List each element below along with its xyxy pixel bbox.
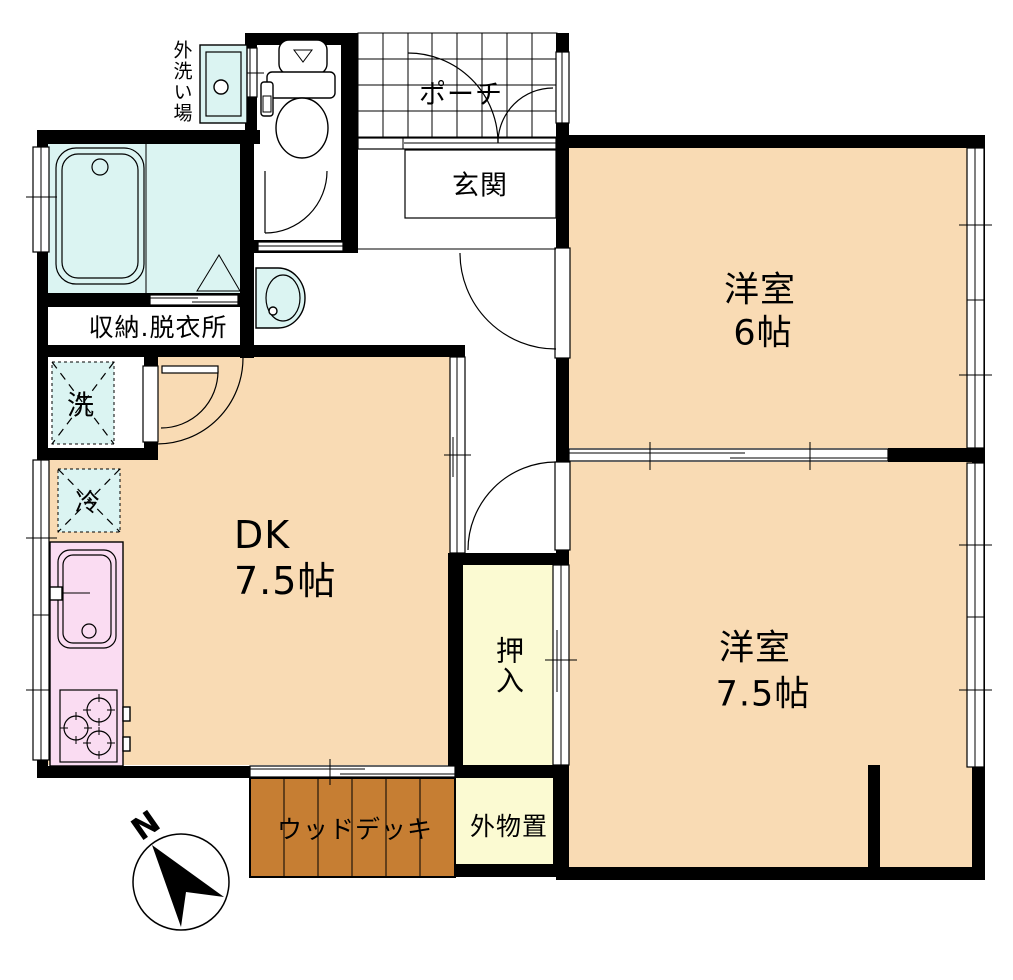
wall-segment bbox=[448, 553, 569, 565]
room75-size-label: 7.5帖 bbox=[716, 666, 811, 717]
porch-label: ポーチ bbox=[419, 73, 503, 112]
counter-tab bbox=[123, 707, 130, 721]
compass bbox=[133, 834, 229, 930]
sliding-door-bathroom bbox=[150, 295, 238, 305]
north-arrow-icon bbox=[152, 845, 224, 927]
wall-segment bbox=[888, 448, 972, 462]
dk-size-label: 7.5帖 bbox=[234, 558, 336, 604]
dk-label-block: DK 7.5帖 bbox=[234, 512, 336, 604]
washbasin bbox=[256, 268, 305, 328]
room75-door-arc bbox=[468, 462, 556, 550]
washing-machine-label: 洗 bbox=[67, 384, 95, 423]
wall-segment bbox=[448, 553, 463, 778]
closet-label: 押入 bbox=[488, 636, 528, 696]
dressing-door-leaf-2 bbox=[162, 366, 218, 373]
wall-stub bbox=[868, 765, 880, 867]
room6-size-label: 6帖 bbox=[733, 305, 792, 356]
dressing-door-leaf bbox=[143, 366, 158, 442]
outdoor-wash-basin bbox=[200, 45, 247, 123]
window-porch-side bbox=[556, 52, 569, 123]
wood-deck-label: ウッドデッキ bbox=[277, 810, 433, 846]
wall-segment bbox=[556, 33, 569, 52]
room6-door-arc bbox=[460, 253, 556, 349]
floor-plan: 外洗い場 ポーチ 玄関 洋室 6帖 収納.脱衣所 洗 冷 DK 7.5帖 押入 … bbox=[0, 0, 1013, 980]
wall-segment bbox=[553, 778, 567, 877]
kitchen-counter bbox=[50, 542, 130, 766]
counter-tab bbox=[123, 737, 130, 751]
toilet-threshold bbox=[258, 242, 343, 251]
wall-segment bbox=[556, 135, 985, 148]
dk-name-label: DK bbox=[234, 512, 336, 558]
entrance-threshold bbox=[358, 138, 556, 149]
outdoor-wash-label: 外洗い場 bbox=[169, 40, 196, 124]
wall-segment bbox=[455, 864, 567, 877]
wall-segment bbox=[556, 867, 985, 880]
storage-dressing-label: 収納.脱衣所 bbox=[89, 308, 228, 344]
wall-segment bbox=[448, 765, 569, 778]
toilet bbox=[261, 40, 335, 158]
wall-segment bbox=[341, 33, 358, 253]
toilet-door-arc bbox=[265, 171, 327, 233]
outdoor-storage-label: 外物置 bbox=[470, 807, 548, 843]
wall-segment bbox=[37, 345, 465, 357]
door-opening-room6 bbox=[555, 248, 570, 358]
wall-segment bbox=[37, 766, 250, 778]
wall-segment bbox=[37, 130, 260, 144]
refrigerator-label: 冷 bbox=[75, 483, 101, 519]
entrance-label: 玄関 bbox=[452, 164, 508, 203]
room75-name-label: 洋室 bbox=[719, 620, 791, 671]
faucet-icon bbox=[50, 587, 62, 600]
wall-segment bbox=[37, 448, 158, 460]
door-opening-room75 bbox=[555, 462, 570, 550]
entrance-door-arc-2 bbox=[498, 88, 553, 143]
